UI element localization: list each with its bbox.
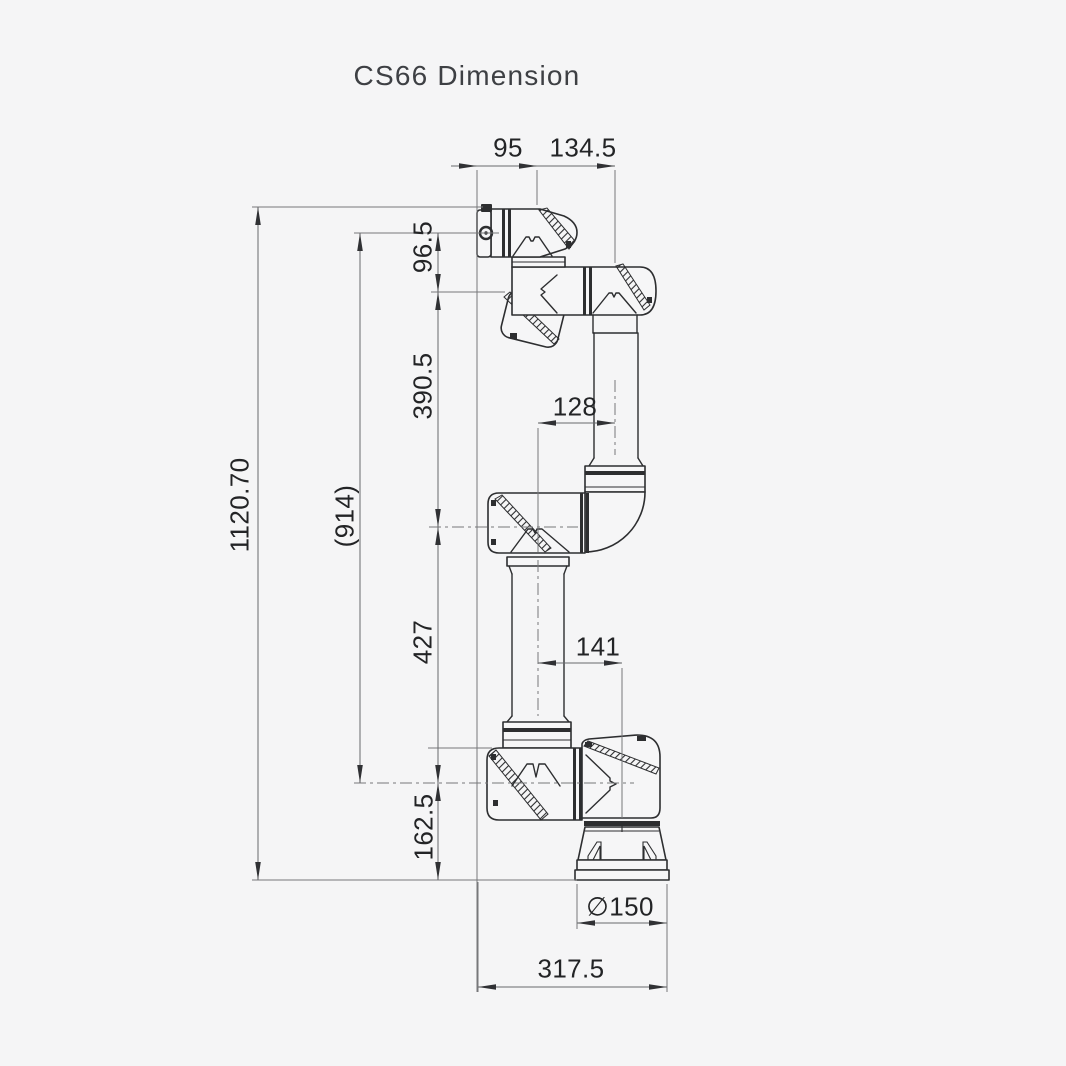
dim-label-reach: (914)	[330, 485, 361, 548]
elbow-joint	[488, 492, 645, 553]
dim-label-flange-offset: 95	[493, 133, 523, 164]
wrist-joint-housing	[512, 257, 656, 315]
robot-arm	[477, 204, 669, 880]
dim-label-base-offset: 141	[576, 632, 621, 663]
dim-label-elbow-offset: 128	[553, 392, 598, 423]
shoulder-collar	[503, 722, 571, 748]
upper-arm-tube	[503, 557, 571, 748]
base-pedestal	[575, 821, 669, 880]
dim-label-wrist-offset: 134.5	[549, 133, 616, 164]
wrist3-head	[477, 204, 577, 257]
elbow-collar	[585, 466, 645, 492]
flange-connector	[481, 204, 492, 212]
dim-label-base-diameter: ∅150	[586, 892, 654, 923]
dim-label-total-height: 1120.70	[225, 458, 256, 553]
dim-label-forearm-length: 390.5	[408, 352, 439, 419]
base-flange	[577, 860, 667, 870]
dim-label-footprint-width: 317.5	[537, 954, 604, 985]
base-joint	[582, 735, 660, 818]
dim-label-wrist-height: 96.5	[408, 221, 439, 273]
robot-dimension-drawing	[0, 0, 1066, 1066]
dim-label-upper-arm-length: 427	[408, 620, 439, 665]
drawing-title: CS66 Dimension	[354, 60, 581, 92]
dimension-drawing-page: CS66 Dimension 95 134.5 128 141 ∅150 317…	[0, 0, 1066, 1066]
shoulder-joint	[487, 748, 582, 820]
dim-label-base-height: 162.5	[409, 793, 440, 860]
